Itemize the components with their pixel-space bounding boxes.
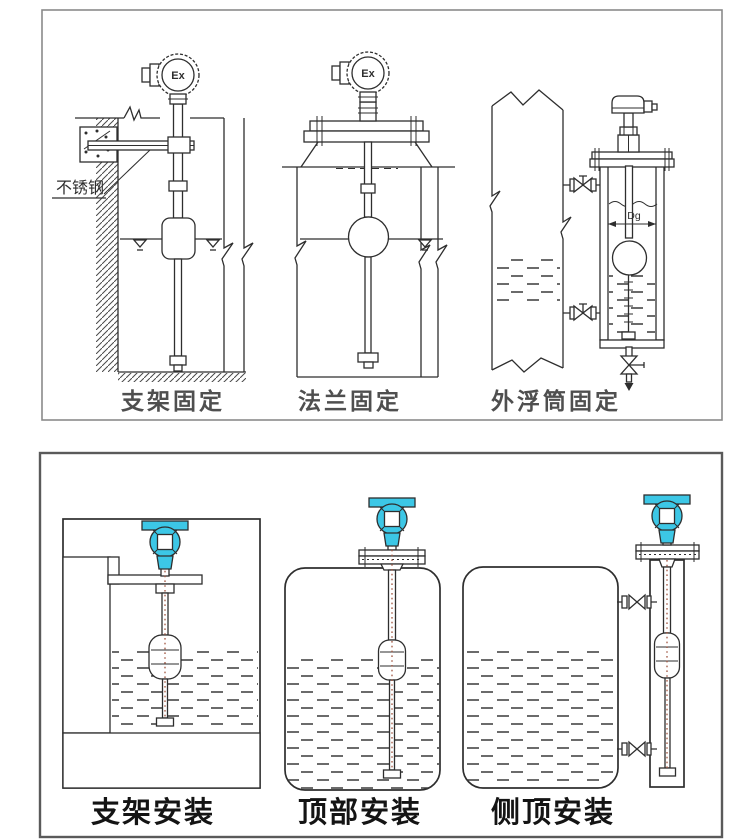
- tank-wall: [490, 106, 500, 370]
- caption-top-installation: 顶部安装: [298, 795, 422, 829]
- float-ball: [349, 217, 389, 257]
- level-mark: [207, 240, 219, 250]
- stem-end-stop: [358, 353, 378, 362]
- lower-isolation-valve: [563, 304, 600, 320]
- floor-hatching: [118, 373, 246, 382]
- label-stainless-steel: 不锈钢: [56, 179, 104, 197]
- chamber-flange: [636, 545, 699, 551]
- transmitter-head-ex: [142, 54, 199, 104]
- chamber-flange: [592, 152, 672, 159]
- caption-external-chamber-fixing: 外浮筒固定: [491, 388, 621, 414]
- lower-connection-valve: [617, 742, 657, 756]
- transmitter-head-junction-box: [612, 96, 657, 152]
- transmitter-head: [369, 498, 415, 546]
- stem-end-stop: [622, 332, 635, 339]
- tank-liquid: [286, 658, 439, 789]
- diagram-external-chamber-fixing: Dg: [490, 90, 674, 391]
- brick-floor: [63, 733, 260, 788]
- tank-wall: [242, 118, 253, 372]
- float-ball: [613, 241, 647, 275]
- flange-plate: [304, 131, 429, 142]
- caption-flange-fixing: 法兰固定: [298, 388, 402, 414]
- transmitter-head: [644, 495, 690, 543]
- level-mark: [134, 240, 146, 250]
- diagram-canvas: Ex: [0, 0, 750, 840]
- bracket-shelf: [108, 575, 202, 584]
- installation-diagram-page: Ex: [0, 0, 750, 840]
- tank-liquid: [496, 256, 560, 302]
- stem-clamp: [168, 137, 190, 153]
- flange-plate: [310, 121, 423, 131]
- diagram-bracket-installation: [63, 519, 260, 788]
- stem-end-stop: [384, 770, 401, 778]
- sensor-stem: [365, 142, 372, 217]
- label-dg: Dg: [627, 210, 641, 222]
- caption-bracket-installation: 支架安装: [91, 796, 215, 829]
- diagram-side-top-installation: [463, 495, 699, 788]
- diagram-flange-fixing: [282, 52, 455, 377]
- tank-liquid: [112, 646, 258, 730]
- caption-bracket-fixing: 支架固定: [120, 388, 225, 414]
- upper-isolation-valve: [563, 176, 600, 192]
- stem-collar: [169, 181, 187, 191]
- brick-wall: [63, 557, 110, 733]
- stem-end-stop: [170, 356, 186, 365]
- stem-end-stop: [157, 718, 174, 726]
- tank-wall: [295, 167, 306, 377]
- chamber-liquid: [609, 270, 655, 336]
- sensor-stem: [626, 166, 633, 238]
- caption-side-top-installation: 侧顶安装: [491, 796, 615, 829]
- transmitter-head-ex: [332, 52, 389, 102]
- diagram-top-installation: [285, 498, 440, 790]
- diagram-bracket-fixing: 不锈钢: [52, 54, 253, 382]
- tank-liquid: [464, 650, 617, 787]
- sensor-stem: [389, 570, 396, 640]
- upper-connection-valve: [617, 595, 657, 609]
- sensor-stem: [174, 104, 183, 218]
- tank-wall: [222, 118, 233, 372]
- drain-valve: [621, 347, 644, 391]
- stem-end-stop: [660, 768, 676, 776]
- float: [162, 218, 195, 259]
- tank-wall: [419, 167, 430, 377]
- stem-collar: [361, 184, 375, 193]
